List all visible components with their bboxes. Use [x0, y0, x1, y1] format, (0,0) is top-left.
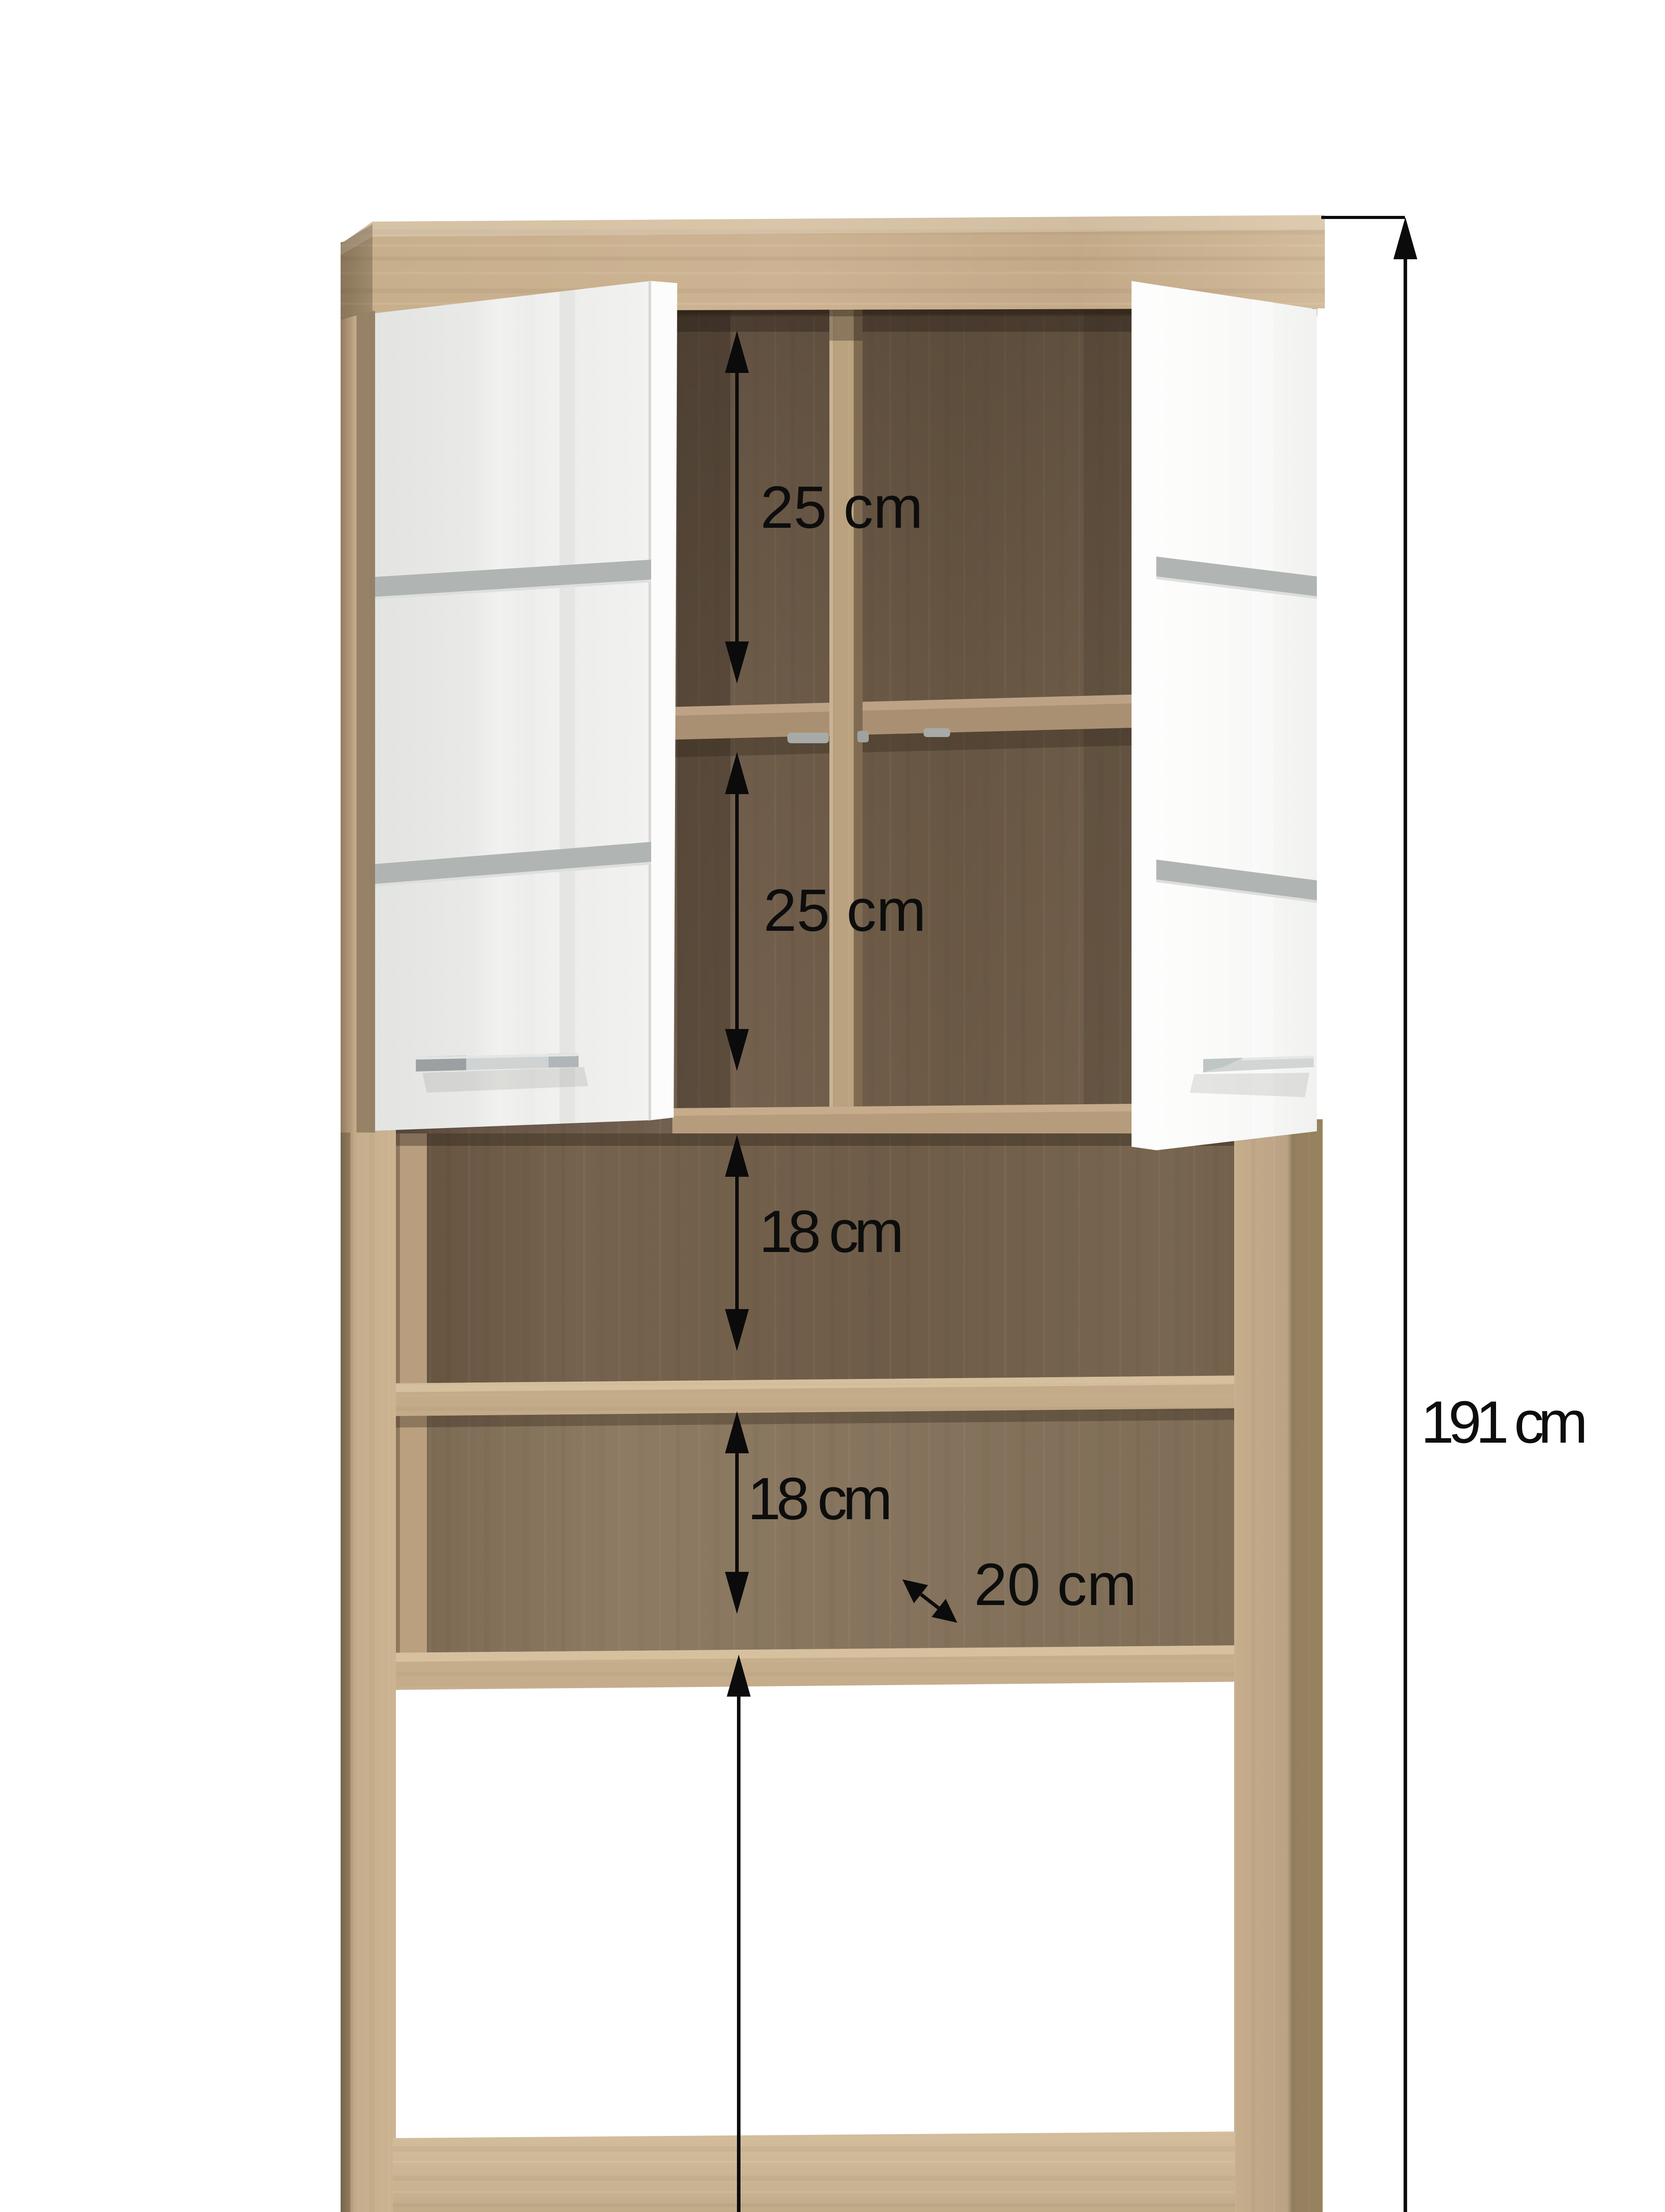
svg-text:18 cm: 18 cm	[748, 1465, 889, 1532]
svg-text:18 cm: 18 cm	[759, 1198, 900, 1265]
svg-text:20 cm: 20 cm	[974, 1551, 1137, 1618]
svg-text:25 cm: 25 cm	[760, 474, 923, 541]
svg-text:191 cm: 191 cm	[1421, 1389, 1584, 1455]
svg-text:25 cm: 25 cm	[763, 877, 926, 944]
